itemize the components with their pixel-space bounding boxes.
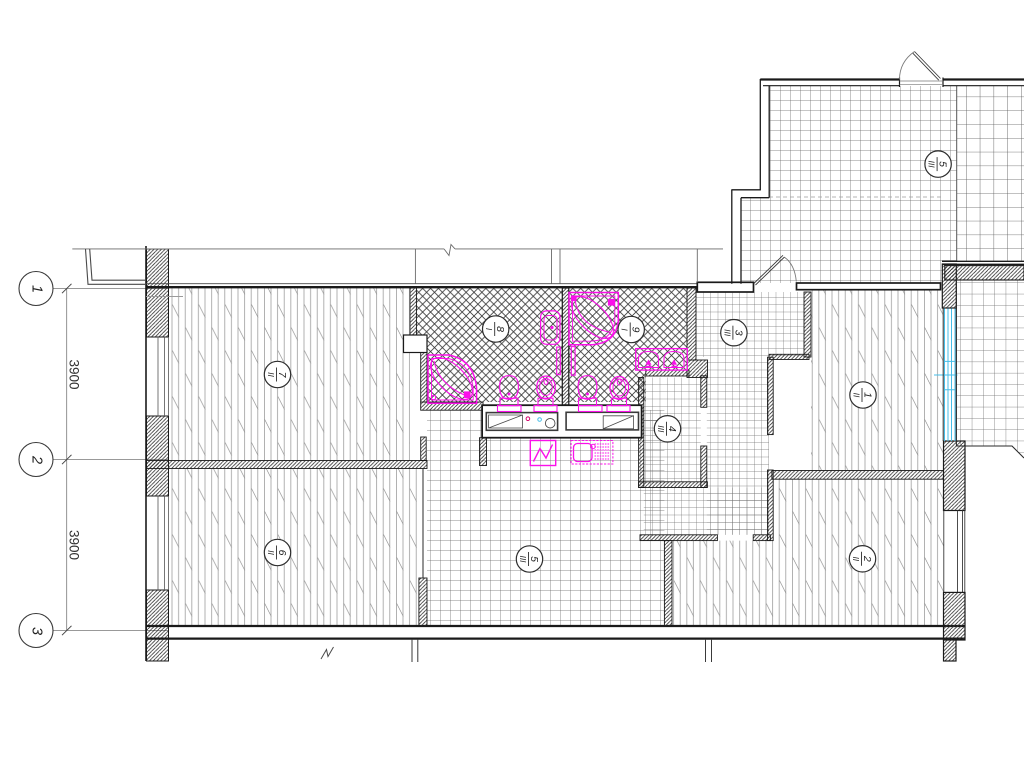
svg-text:6: 6 — [276, 550, 288, 556]
svg-text:2: 2 — [29, 455, 45, 464]
svg-text:3: 3 — [732, 330, 744, 336]
svg-text:1: 1 — [29, 285, 45, 293]
svg-text:II: II — [266, 372, 276, 377]
svg-text:3900: 3900 — [67, 530, 82, 560]
svg-text:1: 1 — [862, 392, 874, 398]
svg-text:8: 8 — [494, 326, 506, 332]
svg-text:3: 3 — [29, 627, 45, 635]
svg-text:III: III — [656, 425, 666, 433]
svg-text:II: II — [851, 556, 861, 561]
svg-text:2: 2 — [861, 555, 873, 562]
svg-text:III: III — [722, 329, 732, 337]
svg-text:II: II — [852, 393, 862, 398]
svg-text:III: III — [927, 161, 937, 169]
svg-text:3900: 3900 — [67, 359, 82, 389]
svg-text:II: II — [266, 550, 276, 555]
svg-text:III: III — [518, 555, 528, 563]
svg-text:5: 5 — [528, 556, 540, 562]
svg-text:5: 5 — [937, 161, 949, 167]
svg-text:9: 9 — [630, 327, 642, 333]
svg-text:4: 4 — [666, 426, 678, 432]
